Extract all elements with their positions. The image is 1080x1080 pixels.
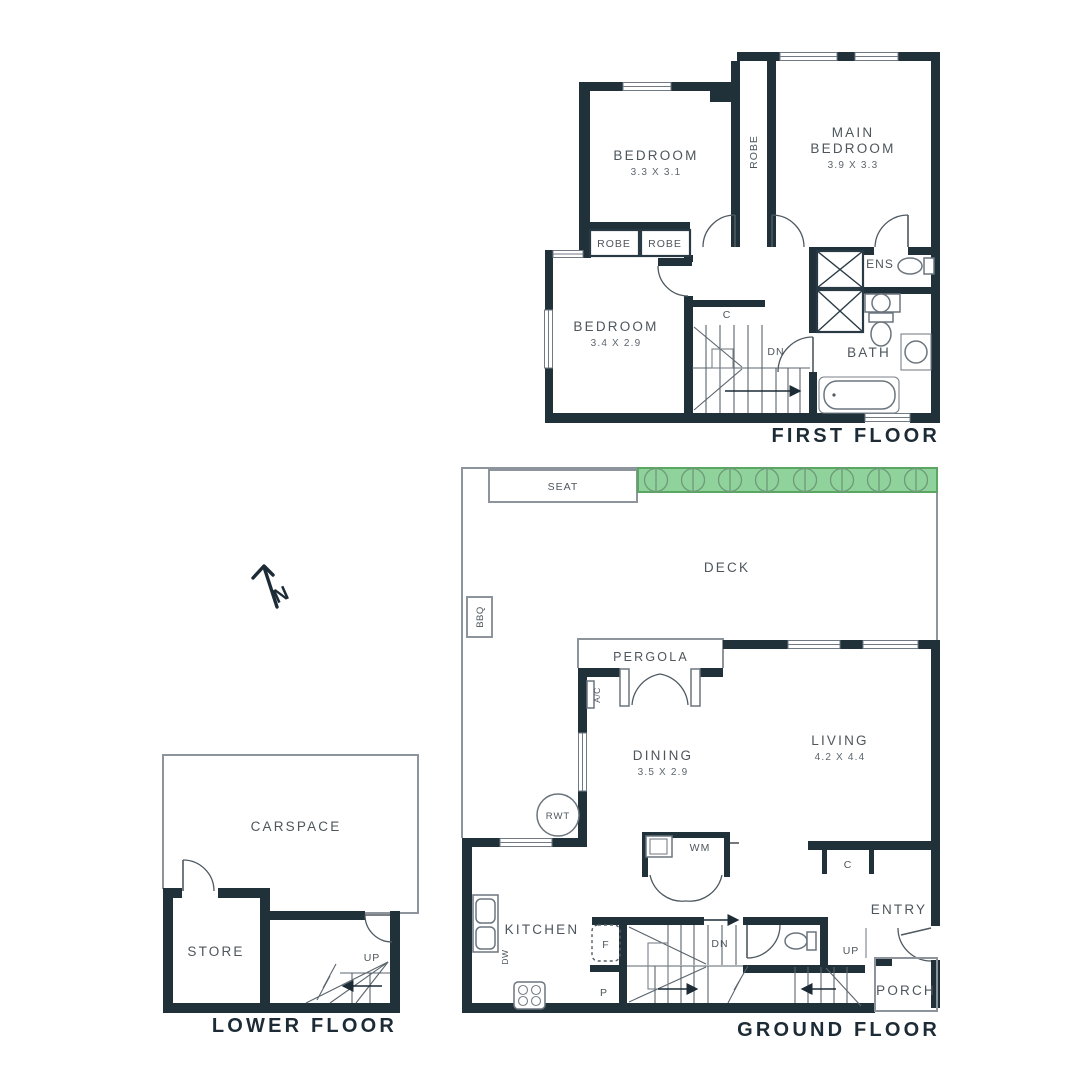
toilet-bowl (871, 322, 891, 346)
first-floor-stairs (692, 325, 810, 413)
bedroom1-door-arc (703, 215, 735, 247)
gf-stairs-down-label: DN (711, 938, 728, 950)
ensuite-door-arc (875, 215, 908, 247)
stair-break-line (728, 966, 748, 1003)
gf-cupboard-label: C (844, 859, 853, 871)
lower-floor-title: LOWER FLOOR (212, 1015, 397, 1037)
floorplan-canvas: BEDROOM 3.3 X 3.1 MAIN BEDROOM 3.9 X 3.3… (0, 0, 1080, 1080)
deck-label: DECK (704, 560, 750, 575)
floorplan-page: BEDROOM 3.3 X 3.1 MAIN BEDROOM 3.9 X 3.3… (0, 0, 1080, 1080)
bedroom3-label: BEDROOM (573, 319, 658, 334)
wm-door-arc-right (686, 875, 722, 901)
living-dims: 4.2 X 4.4 (815, 752, 866, 763)
dining-label: DINING (633, 748, 693, 763)
store-door-arc (183, 860, 214, 891)
kitchen-label: KITCHEN (505, 922, 580, 937)
main-bedroom-door-arc (772, 215, 804, 247)
north-arrow-head (253, 566, 273, 578)
lf-stairs-up-label: UP (364, 952, 381, 964)
lower-floor-plan: CARSPACE STORE UP LOWER FLOOR (163, 755, 418, 1037)
sink-bowl-1 (476, 899, 495, 923)
ground-floor-plan: SEAT DECK BBQ PERGOLA A/C DINING 3.5 X 2… (462, 468, 940, 1041)
french-door-leaf-right (691, 669, 700, 706)
wm-label: WM (690, 842, 711, 854)
ensuite-label: ENS (866, 257, 894, 271)
bedroom1-dims: 3.3 X 3.1 (631, 167, 682, 178)
north-label: N (270, 582, 292, 608)
gf-stairs-up-label: UP (843, 945, 860, 957)
entry-door-arc (898, 928, 931, 961)
ens-sink (898, 258, 922, 274)
hedge-strip (638, 468, 937, 492)
carspace-label: CARSPACE (251, 819, 342, 834)
main-bedroom-dims: 3.9 X 3.3 (828, 160, 879, 171)
french-door-leaf-left (620, 669, 629, 706)
bedroom1-label: BEDROOM (613, 148, 698, 163)
sink-bowl-2 (476, 927, 495, 949)
hedge (638, 468, 937, 492)
porch-label: PORCH (876, 983, 936, 998)
living-label: LIVING (811, 733, 868, 748)
ground-floor-walls (462, 640, 940, 1013)
ens-sink-faucet (924, 258, 934, 274)
first-floor-title: FIRST FLOOR (771, 425, 940, 447)
ground-floor-title: GROUND FLOOR (737, 1019, 940, 1041)
cooktop (514, 982, 545, 1009)
dishwasher-label: DW (500, 949, 510, 964)
toilet-cistern (869, 313, 893, 322)
bedroom3-dims: 3.4 X 2.9 (591, 338, 642, 349)
wm-door-arc-left (650, 875, 686, 901)
rwt-label: RWT (546, 811, 570, 822)
pantry-label: P (600, 987, 608, 999)
robe-corridor-label: ROBE (748, 135, 760, 169)
main-bedroom-label-2: BEDROOM (810, 141, 895, 156)
ens-basin (872, 294, 890, 312)
powder-toilet-bowl (785, 933, 807, 949)
powder-toilet-cistern (807, 932, 816, 950)
bedroom3-door-leaf (658, 258, 692, 266)
stair-room-door-arc (365, 915, 392, 942)
powder-room (747, 925, 816, 958)
dining-dims: 3.5 X 2.9 (638, 767, 689, 778)
seat-label: SEAT (548, 481, 579, 493)
robe-box-2-label: ROBE (648, 238, 682, 250)
bathtub-drain (832, 393, 835, 396)
north-compass: N (253, 566, 292, 608)
carspace-outline (163, 755, 418, 913)
french-door-arc-right (660, 674, 688, 705)
deck-outline (462, 468, 937, 838)
robe-box-1-label: ROBE (597, 238, 631, 250)
bbq-label: BBQ (475, 606, 486, 628)
french-door-arc-left (632, 674, 660, 705)
aircon-label: A/C (592, 687, 602, 703)
store-label: STORE (187, 944, 244, 959)
first-floor-plan: BEDROOM 3.3 X 3.1 MAIN BEDROOM 3.9 X 3.3… (545, 52, 941, 447)
ff-cupboard-label: C (723, 309, 732, 321)
main-bedroom-label-1: MAIN (832, 125, 875, 140)
powder-door-arc (747, 925, 780, 958)
french-doors (620, 669, 700, 706)
bath-basin (905, 341, 927, 363)
ff-stairs-down-label: DN (767, 346, 784, 358)
pergola-label: PERGOLA (613, 650, 689, 664)
bathroom-label: BATH (847, 345, 891, 360)
lf-stair-break-line (317, 964, 336, 1000)
entry-label: ENTRY (871, 902, 928, 917)
entry-porch (866, 928, 937, 1011)
fridge-label: F (602, 939, 609, 951)
lower-floor-stairs (306, 962, 390, 1003)
bedroom3-door-arc (658, 266, 688, 296)
lower-floor-doors (183, 860, 392, 942)
